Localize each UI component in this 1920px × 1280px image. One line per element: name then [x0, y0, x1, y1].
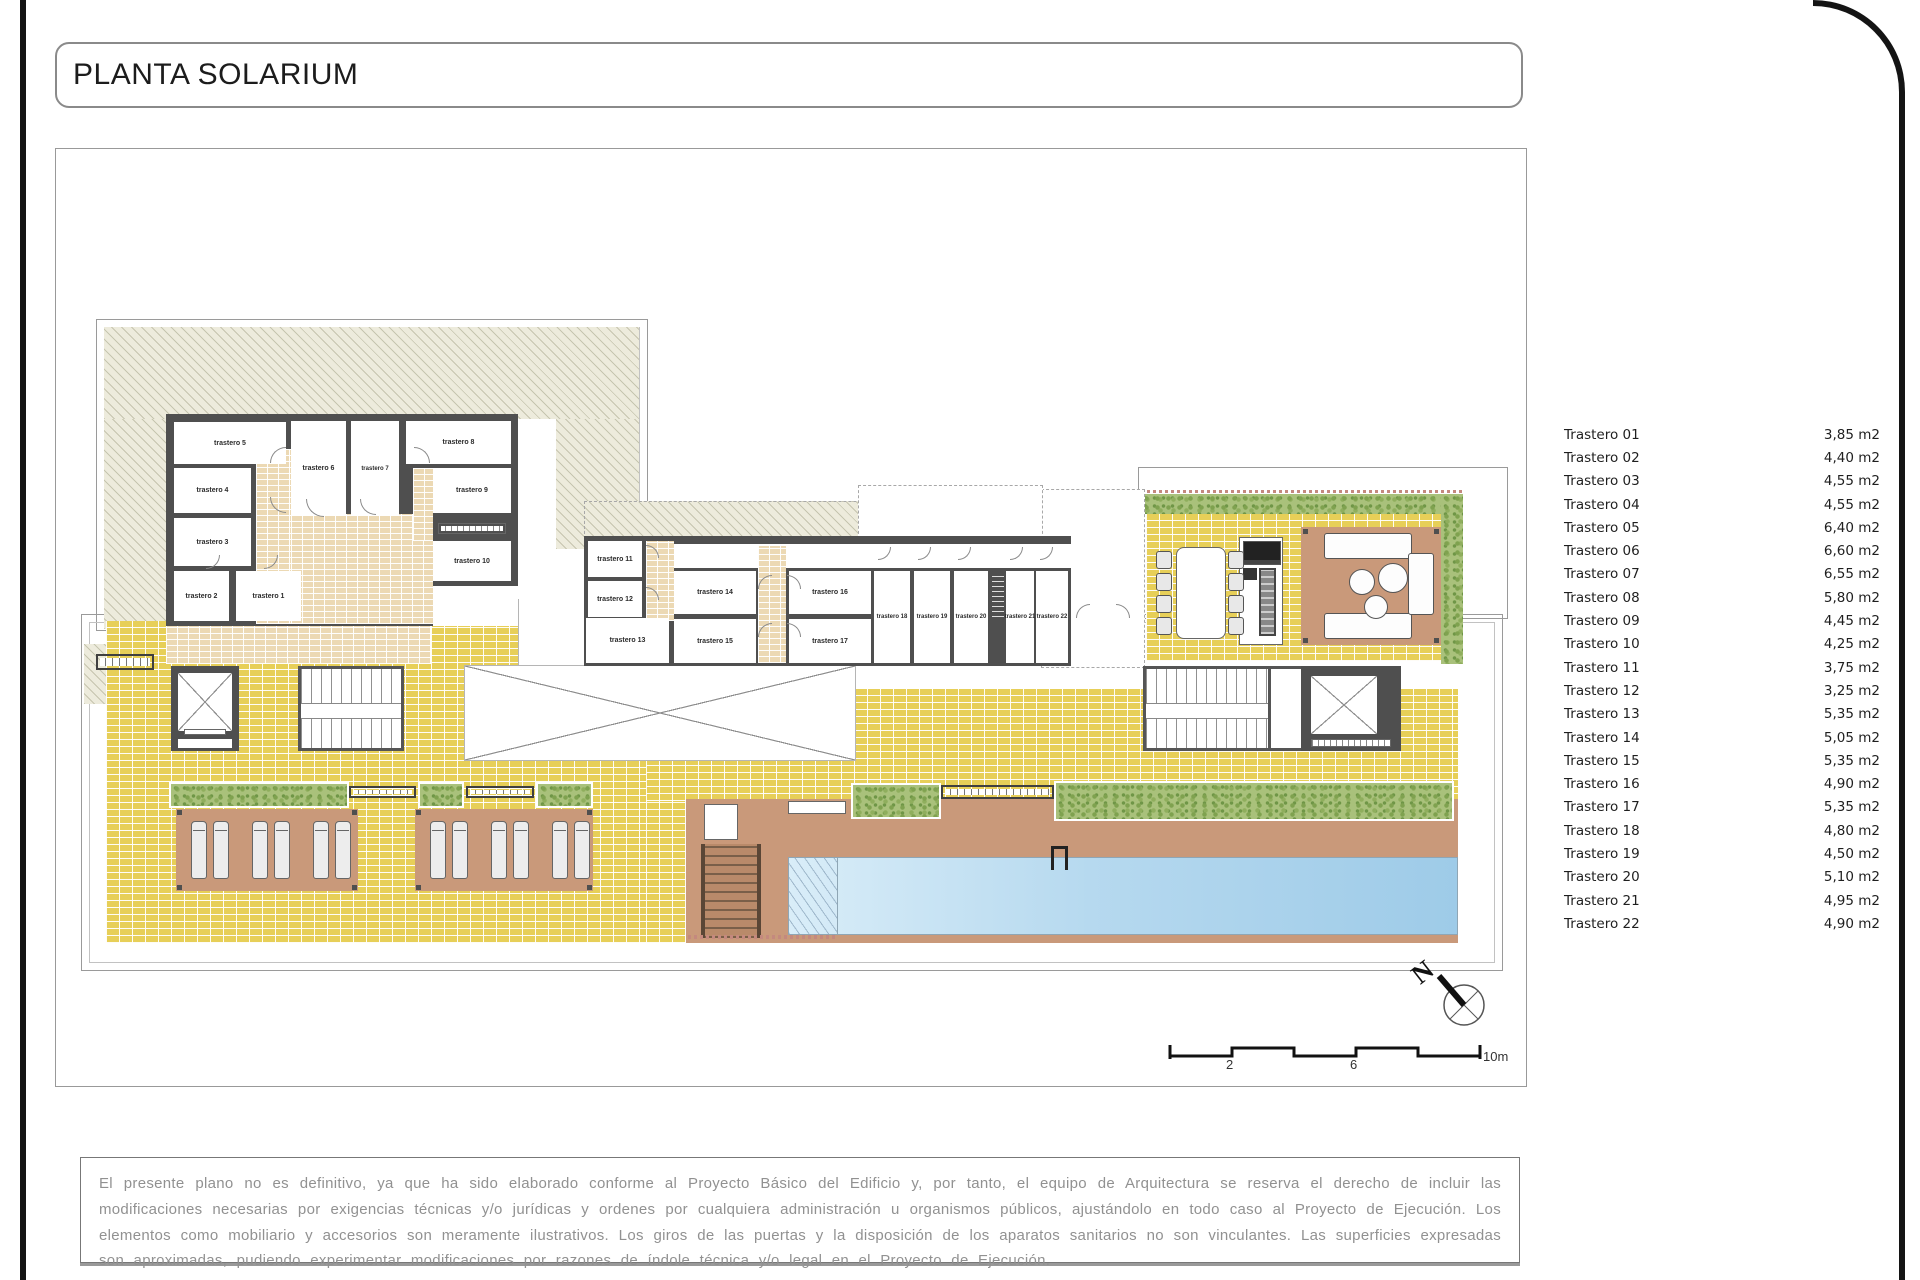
duct	[992, 573, 1004, 617]
storage-list-row: Trastero 194,50 m2	[1564, 842, 1880, 865]
chair-icon	[1228, 551, 1244, 569]
sun-lounger-icon	[430, 821, 446, 879]
chair-icon	[1228, 595, 1244, 613]
storage-list-row: Trastero 013,85 m2	[1564, 423, 1880, 446]
sun-lounger-icon	[574, 821, 590, 879]
storage-area: 3,75 m2	[1824, 660, 1880, 676]
room-label: trastero 9	[456, 487, 488, 494]
storage-list-row: Trastero 145,05 m2	[1564, 726, 1880, 749]
room-trastero-12: trastero 12	[588, 581, 642, 617]
hedge-right	[1441, 494, 1463, 664]
storage-area: 4,25 m2	[1824, 636, 1880, 652]
storage-name: Trastero 04	[1564, 497, 1640, 513]
storage-name: Trastero 16	[1564, 776, 1640, 792]
title-box: PLANTA SOLARIUM	[55, 42, 1523, 108]
storage-area: 4,45 m2	[1824, 613, 1880, 629]
deck-stairs	[701, 844, 761, 938]
shelf	[438, 523, 506, 534]
north-label: N	[1406, 954, 1440, 990]
elevator-left	[171, 666, 239, 751]
room-trastero-9: trastero 9	[433, 468, 511, 513]
sun-lounger-icon	[213, 821, 229, 879]
storage-name: Trastero 06	[1564, 543, 1640, 559]
sun-lounger-icon	[452, 821, 468, 879]
storage-area-list: Trastero 013,85 m2Trastero 024,40 m2Tras…	[1564, 423, 1880, 936]
storage-list-row: Trastero 034,55 m2	[1564, 470, 1880, 493]
chair-icon	[1228, 573, 1244, 591]
storage-name: Trastero 13	[1564, 706, 1640, 722]
lounge-deck	[1301, 527, 1441, 645]
storage-area: 3,85 m2	[1824, 427, 1880, 443]
storage-list-row: Trastero 184,80 m2	[1564, 819, 1880, 842]
room-label: trastero 21	[1005, 614, 1036, 620]
room-label: trastero 17	[812, 638, 848, 645]
storage-name: Trastero 07	[1564, 566, 1640, 582]
planter	[851, 783, 941, 819]
round-table	[1349, 569, 1375, 595]
room-trastero-21: trastero 21	[1006, 571, 1034, 663]
storage-name: Trastero 15	[1564, 753, 1640, 769]
room-label: trastero 20	[956, 614, 987, 620]
room-trastero-18: trastero 18	[874, 571, 910, 663]
room-label: trastero 19	[917, 614, 948, 620]
planter	[169, 782, 349, 808]
room-trastero-13: trastero 13	[586, 618, 669, 663]
storage-list-row: Trastero 076,55 m2	[1564, 563, 1880, 586]
storage-name: Trastero 02	[1564, 450, 1640, 466]
room-label: trastero 8	[443, 439, 475, 446]
storage-list-row: Trastero 104,25 m2	[1564, 633, 1880, 656]
pool	[788, 857, 1458, 935]
sofa-bottom	[1324, 613, 1412, 639]
roof-hatch-left	[104, 419, 166, 629]
room-label: trastero 2	[186, 593, 218, 600]
storage-name: Trastero 11	[1564, 660, 1640, 676]
storage-area: 4,55 m2	[1824, 473, 1880, 489]
storage-area: 5,10 m2	[1824, 869, 1880, 885]
storage-area: 4,80 m2	[1824, 823, 1880, 839]
stairs-left	[298, 666, 404, 751]
storage-area: 4,40 m2	[1824, 450, 1880, 466]
storage-list-row: Trastero 113,75 m2	[1564, 656, 1880, 679]
sun-lounger-icon	[191, 821, 207, 879]
storage-list-row: Trastero 224,90 m2	[1564, 912, 1880, 935]
storage-name: Trastero 20	[1564, 869, 1640, 885]
scale-bar: 2 6 10m	[1166, 1037, 1516, 1073]
sun-lounger-icon	[552, 821, 568, 879]
storage-name: Trastero 12	[1564, 683, 1640, 699]
north-arrow: N	[1406, 947, 1501, 1042]
kitchen-unit	[1239, 537, 1283, 645]
roof-hatch-top	[104, 327, 639, 419]
storage-area: 3,25 m2	[1824, 683, 1880, 699]
room-trastero-20: trastero 20	[954, 571, 988, 663]
floor-plan: N 2 6 10m trastero 1trastero 2trastero 3…	[55, 148, 1527, 1087]
room-trastero-5: trastero 5	[174, 422, 286, 464]
room-label: trastero 6	[303, 465, 335, 472]
kitchen-sink	[1243, 568, 1257, 580]
storage-list-row: Trastero 164,90 m2	[1564, 772, 1880, 795]
room-label: trastero 18	[877, 614, 908, 620]
storage-area: 5,35 m2	[1824, 753, 1880, 769]
storage-area: 4,55 m2	[1824, 497, 1880, 513]
hedge-top	[1141, 494, 1461, 514]
svg-text:2: 2	[1226, 1057, 1233, 1072]
kitchen-counter	[1259, 568, 1276, 636]
storage-area: 4,50 m2	[1824, 846, 1880, 862]
elevator-car-icon	[178, 673, 232, 731]
room-label: trastero 22	[1037, 614, 1068, 620]
storage-area: 5,05 m2	[1824, 730, 1880, 746]
storage-area: 5,35 m2	[1824, 706, 1880, 722]
storage-list-row: Trastero 155,35 m2	[1564, 749, 1880, 772]
chair-icon	[1156, 595, 1172, 613]
kitchen-appliance	[1243, 541, 1281, 565]
room-label: trastero 7	[361, 466, 388, 472]
room-trastero-2: trastero 2	[174, 571, 229, 621]
room-label: trastero 10	[454, 558, 490, 565]
room-label: trastero 1	[253, 593, 285, 600]
storage-list-row: Trastero 094,45 m2	[1564, 609, 1880, 632]
room-label: trastero 5	[214, 440, 246, 447]
room-trastero-4: trastero 4	[174, 468, 251, 513]
room-trastero-16: trastero 16	[789, 571, 871, 614]
svg-text:6: 6	[1350, 1057, 1357, 1072]
room-trastero-1: trastero 1	[236, 571, 301, 621]
page-title: PLANTA SOLARIUM	[57, 58, 358, 92]
storage-list-row: Trastero 175,35 m2	[1564, 796, 1880, 819]
room-label: trastero 12	[597, 596, 633, 603]
storage-area: 4,95 m2	[1824, 893, 1880, 909]
storage-area: 6,55 m2	[1824, 566, 1880, 582]
room-trastero-15: trastero 15	[674, 619, 756, 663]
dining-table	[1176, 547, 1226, 639]
elevator-right	[1301, 666, 1401, 751]
elevator-car-icon	[1311, 676, 1377, 734]
storage-name: Trastero 05	[1564, 520, 1640, 536]
room-label: trastero 16	[812, 589, 848, 596]
room-label: trastero 3	[197, 539, 229, 546]
room-trastero-10: trastero 10	[433, 541, 511, 581]
storage-name: Trastero 09	[1564, 613, 1640, 629]
room-trastero-22: trastero 22	[1036, 571, 1068, 663]
plan-sheet: { "title": "PLANTA SOLARIUM", "storage_l…	[0, 0, 1920, 1280]
room-label: trastero 4	[197, 487, 229, 494]
storage-area: 4,90 m2	[1824, 916, 1880, 932]
storage-name: Trastero 03	[1564, 473, 1640, 489]
storage-list-row: Trastero 044,55 m2	[1564, 493, 1880, 516]
room-trastero-19: trastero 19	[914, 571, 950, 663]
storage-list-row: Trastero 123,25 m2	[1564, 679, 1880, 702]
svg-text:10m: 10m	[1483, 1049, 1508, 1064]
chair-icon	[1156, 617, 1172, 635]
sofa-right	[1408, 553, 1434, 615]
planter-long	[1054, 781, 1454, 821]
storage-name: Trastero 14	[1564, 730, 1640, 746]
storage-list-row: Trastero 056,40 m2	[1564, 516, 1880, 539]
roof-void-x	[464, 665, 856, 761]
pool-steps	[789, 858, 838, 934]
storage-name: Trastero 08	[1564, 590, 1640, 606]
room-label: trastero 13	[610, 637, 646, 644]
bench	[466, 786, 534, 798]
disclaimer-text: El presente plano no es definitivo, ya q…	[99, 1171, 1501, 1274]
storage-area: 6,60 m2	[1824, 543, 1880, 559]
stairs-right	[1143, 666, 1271, 751]
shower-box	[704, 804, 738, 840]
sun-lounger-icon	[313, 821, 329, 879]
chair-icon	[1156, 551, 1172, 569]
room-trastero-14: trastero 14	[674, 571, 756, 614]
storage-list-row: Trastero 066,60 m2	[1564, 539, 1880, 562]
storage-name: Trastero 17	[1564, 799, 1640, 815]
bench	[96, 654, 154, 670]
sun-lounger-icon	[513, 821, 529, 879]
storage-name: Trastero 21	[1564, 893, 1640, 909]
storage-list-row: Trastero 135,35 m2	[1564, 703, 1880, 726]
storage-name: Trastero 22	[1564, 916, 1640, 932]
bench	[349, 786, 416, 798]
chair-icon	[1156, 573, 1172, 591]
storage-area: 5,35 m2	[1824, 799, 1880, 815]
room-trastero-11: trastero 11	[588, 541, 642, 577]
frame-left-bar	[20, 0, 26, 1280]
storage-area: 4,90 m2	[1824, 776, 1880, 792]
storage-list-row: Trastero 024,40 m2	[1564, 446, 1880, 469]
storage-list-row: Trastero 214,95 m2	[1564, 889, 1880, 912]
disclaimer-note: El presente plano no es definitivo, ya q…	[80, 1157, 1520, 1263]
room-label: trastero 11	[597, 556, 632, 563]
sun-lounger-icon	[491, 821, 507, 879]
terrace-trim	[1141, 490, 1463, 493]
brick-corridor	[166, 626, 431, 664]
storage-area: 5,80 m2	[1824, 590, 1880, 606]
storage-list-row: Trastero 085,80 m2	[1564, 586, 1880, 609]
chair-icon	[1228, 617, 1244, 635]
storage-name: Trastero 10	[1564, 636, 1640, 652]
room-label: trastero 15	[697, 638, 733, 645]
sun-lounger-icon	[335, 821, 351, 879]
room-label: trastero 14	[697, 589, 733, 596]
storage-list-row: Trastero 205,10 m2	[1564, 866, 1880, 889]
bench	[941, 785, 1054, 799]
storage-name: Trastero 01	[1564, 427, 1640, 443]
sun-lounger-icon	[274, 821, 290, 879]
storage-area: 6,40 m2	[1824, 520, 1880, 536]
sun-lounger-icon	[252, 821, 268, 879]
storage-name: Trastero 18	[1564, 823, 1640, 839]
sofa-top	[1324, 533, 1412, 559]
storage-name: Trastero 19	[1564, 846, 1640, 862]
room-trastero-17: trastero 17	[789, 619, 871, 663]
